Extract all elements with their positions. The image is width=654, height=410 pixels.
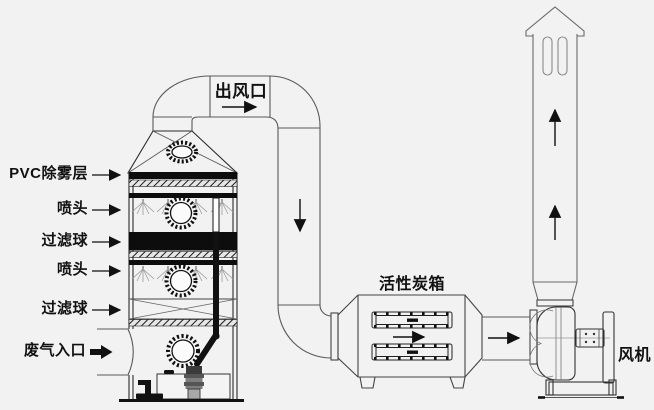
recirculation-pipe — [197, 198, 220, 364]
callout-filter-ball-lower: 过滤球 — [0, 301, 88, 318]
label-waste-gas-inlet: 废气入口 — [0, 343, 86, 360]
upper-filter-ball-band — [129, 232, 237, 265]
callout-filter-ball-upper: 过滤球 — [0, 233, 88, 250]
carbon-filter-drawer-upper — [372, 312, 452, 328]
callout-spray-nozzle-upper: 喷头 — [0, 201, 88, 218]
callout-pvc-demister-layer: PVC除雾层 — [0, 166, 88, 183]
fan-assembly — [530, 307, 614, 383]
label-fan: 风机 — [618, 347, 651, 365]
label-air-outlet: 出风口 — [213, 83, 269, 102]
carbon-box-body — [338, 295, 482, 388]
duct-to-carbon-box-flange — [331, 313, 338, 360]
pvc-demister-layer-band — [129, 172, 237, 198]
lower-manhole — [167, 267, 196, 296]
waste-gas-inlet-arrow-icon — [90, 345, 113, 359]
diagram-linework — [0, 0, 654, 410]
exhaust-gas-treatment-diagram: PVC除雾层 喷头 过滤球 喷头 过滤球 废气入口 出风口 活性炭箱 风机 — [0, 0, 654, 410]
upper-manhole — [167, 199, 196, 228]
tower-top-manhole — [168, 143, 196, 162]
lower-filter-ball-band — [129, 299, 237, 326]
bottom-manhole — [168, 336, 198, 366]
tower-base — [119, 399, 244, 402]
exhaust-stack — [526, 7, 584, 306]
carbon-filter-drawer-lower — [372, 344, 452, 360]
callout-leader-arrows — [92, 175, 120, 310]
label-activated-carbon-box: 活性炭箱 — [376, 276, 448, 294]
callout-spray-nozzle-lower: 喷头 — [0, 262, 88, 279]
